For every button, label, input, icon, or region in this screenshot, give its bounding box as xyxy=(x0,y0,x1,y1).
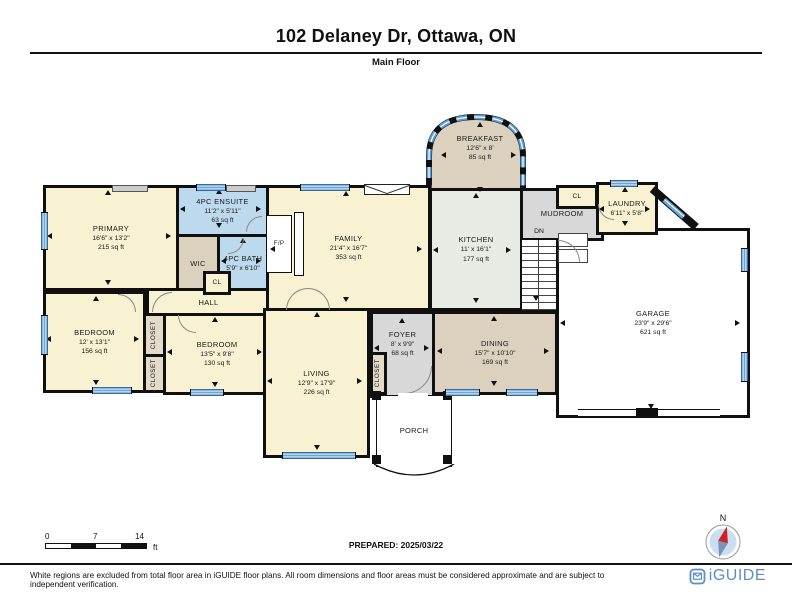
dimension-arrow xyxy=(256,206,261,212)
dimension-arrow xyxy=(511,152,516,158)
room-area: 130 sq ft xyxy=(197,359,238,368)
compass-north-label: N xyxy=(720,513,727,523)
dimension-arrow xyxy=(433,247,438,253)
dimension-arrow xyxy=(477,122,483,127)
dimension-arrow xyxy=(212,382,218,387)
scale-unit: ft xyxy=(153,543,157,552)
dimension-arrow xyxy=(506,247,511,253)
room-name: BEDROOM xyxy=(74,328,115,338)
room-dims: 16'6" x 13'2" xyxy=(92,234,129,243)
room-mudroom-closet: CL xyxy=(556,185,598,209)
garage-door-pier xyxy=(636,408,658,418)
room-dims: 21'4" x 16'7" xyxy=(330,244,367,253)
dimension-arrow xyxy=(257,349,262,355)
dimension-arrow xyxy=(216,223,222,228)
room-name: FAMILY xyxy=(330,234,367,244)
room-name: HALL xyxy=(199,298,219,308)
dimension-arrow xyxy=(166,233,171,239)
window xyxy=(741,352,748,382)
room-area: 226 sq ft xyxy=(298,388,335,397)
room-name: PRIMARY xyxy=(92,224,129,234)
porch-post xyxy=(443,455,452,464)
dimension-arrow xyxy=(212,317,218,322)
iguide-logo-text: iGUIDE xyxy=(709,567,766,585)
room-name: CL xyxy=(213,279,222,288)
window xyxy=(41,315,48,355)
window xyxy=(741,248,748,272)
room-closet-top: CLOSET xyxy=(143,313,166,357)
dimension-arrow xyxy=(167,349,172,355)
dimension-arrow xyxy=(645,206,650,212)
room-dims: 13'5" x 9'8" xyxy=(197,350,238,359)
compass-icon: N xyxy=(701,512,745,567)
scale-mid: 7 xyxy=(93,532,97,541)
room-area: 68 sq ft xyxy=(389,349,416,358)
room-name: BREAKFAST xyxy=(438,134,522,144)
room-name: KITCHEN xyxy=(458,235,493,245)
dimension-arrow xyxy=(267,378,272,384)
room-area: 621 sq ft xyxy=(634,328,671,337)
room-dims: 11' x 16'1" xyxy=(458,245,493,254)
dimension-arrow xyxy=(622,221,628,226)
dimension-arrow xyxy=(417,246,422,252)
floor-plan: BREAKFAST 12'6" x 8' 85 sq ft GARAGE 23'… xyxy=(0,0,792,612)
scale-max: 14 xyxy=(135,532,144,541)
dimension-arrow xyxy=(343,191,349,196)
room-primary: PRIMARY 16'6" x 13'2" 215 sq ft xyxy=(43,185,179,291)
dimension-arrow xyxy=(221,258,226,264)
dimension-arrow xyxy=(270,246,275,252)
dimension-arrow xyxy=(735,320,740,326)
room-dims: 11'2" x 5'11" xyxy=(196,207,248,216)
room-name: CLOSET xyxy=(374,359,383,387)
room-closet-bottom: CLOSET xyxy=(143,354,166,393)
stairs-direction-label: DN xyxy=(522,228,556,235)
porch-post xyxy=(372,455,381,464)
dimension-arrow xyxy=(473,298,479,303)
room-dims: 12'9" x 17'9" xyxy=(298,379,335,388)
dimension-arrow xyxy=(105,190,111,195)
scale-zero: 0 xyxy=(45,532,49,541)
dimension-arrow xyxy=(544,348,549,354)
room-name: BEDROOM xyxy=(197,340,238,350)
dimension-arrow xyxy=(357,378,362,384)
room-name: LIVING xyxy=(298,369,335,379)
staircase xyxy=(520,238,558,312)
window xyxy=(41,212,48,250)
room-name: F/P xyxy=(274,240,285,248)
dimension-arrow xyxy=(491,316,497,321)
dimension-arrow xyxy=(256,258,261,264)
window xyxy=(190,389,224,396)
disclaimer-text: White regions are excluded from total fl… xyxy=(30,571,630,589)
dimension-arrow xyxy=(424,345,429,351)
front-door xyxy=(398,393,428,399)
dimension-arrow xyxy=(93,296,99,301)
floor-plan-page: 102 Delaney Dr, Ottawa, ON Main Floor BR… xyxy=(0,0,792,612)
room-area: 353 sq ft xyxy=(330,253,367,262)
dimension-arrow xyxy=(622,187,628,192)
room-name: FOYER xyxy=(389,330,416,340)
dimension-arrow xyxy=(134,336,139,342)
window xyxy=(506,389,538,396)
wall-vent xyxy=(226,185,256,192)
room-hall-closet: CL xyxy=(203,271,231,295)
room-name: 4PC ENSUITE xyxy=(196,197,248,207)
porch-post xyxy=(372,391,381,400)
dimension-arrow xyxy=(314,312,320,317)
dimension-arrow xyxy=(180,206,185,212)
window xyxy=(92,387,132,394)
room-dims: 12'6" x 8' xyxy=(438,144,522,153)
room-area: 85 sq ft xyxy=(438,153,522,162)
iguide-logo: iGUIDE xyxy=(689,567,766,585)
dimension-arrow xyxy=(477,187,483,192)
room-foyer-closet: CLOSET xyxy=(370,352,387,395)
room-dims: 8' x 9'9" xyxy=(389,340,416,349)
window xyxy=(196,184,226,191)
iguide-logo-icon xyxy=(689,568,706,585)
footer-divider xyxy=(0,563,792,565)
room-name: PORCH xyxy=(400,426,429,436)
room-name: CLOSET xyxy=(150,359,159,387)
dimension-arrow xyxy=(533,296,539,301)
room-area: 156 sq ft xyxy=(74,347,115,356)
dimension-arrow xyxy=(93,380,99,385)
room-area: 169 sq ft xyxy=(474,358,515,367)
room-dims: 15'7" x 10'10" xyxy=(474,349,515,358)
dimension-arrow xyxy=(314,445,320,450)
room-area: 215 sq ft xyxy=(92,243,129,252)
scale-bar: 0 7 14 ft xyxy=(45,532,185,549)
dimension-arrow xyxy=(491,381,497,386)
room-name: DINING xyxy=(474,339,515,349)
french-door xyxy=(364,184,410,195)
room-dims: 12' x 13'1" xyxy=(74,338,115,347)
window xyxy=(300,184,350,191)
room-name: MUDROOM xyxy=(541,209,584,219)
room-name: CL xyxy=(573,193,582,202)
dimension-arrow xyxy=(437,348,442,354)
room-dims: 23'9" x 29'6" xyxy=(634,319,671,328)
room-area: 177 sq ft xyxy=(458,255,493,264)
dimension-arrow xyxy=(105,280,111,285)
dimension-arrow xyxy=(560,320,565,326)
wall-vent xyxy=(112,185,148,192)
scale-bar-segments xyxy=(45,543,147,549)
window xyxy=(445,389,480,396)
room-name: GARAGE xyxy=(634,309,671,319)
dimension-arrow xyxy=(441,152,446,158)
fireplace-hearth xyxy=(294,212,304,276)
room-breakfast-label: BREAKFAST 12'6" x 8' 85 sq ft xyxy=(438,134,522,162)
room-porch: PORCH xyxy=(376,395,452,467)
dimension-arrow xyxy=(374,345,379,351)
window xyxy=(610,180,638,187)
dimension-arrow xyxy=(343,297,349,302)
room-name: WIC xyxy=(190,259,205,269)
room-name: CLOSET xyxy=(150,321,159,349)
dimension-arrow xyxy=(473,193,479,198)
window xyxy=(282,452,356,459)
room-living: LIVING 12'9" x 17'9" 226 sq ft xyxy=(263,308,370,458)
porch-steps-arc xyxy=(372,464,456,486)
dimension-arrow xyxy=(399,318,405,323)
fireplace: F/P xyxy=(266,215,292,273)
room-area: 63 sq ft xyxy=(196,216,248,225)
